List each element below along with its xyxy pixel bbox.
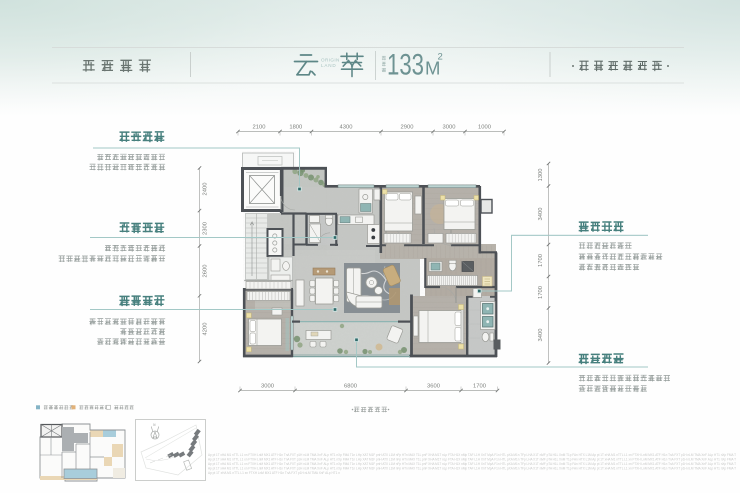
svg-text:133: 133	[387, 49, 424, 82]
svg-text:3000: 3000	[261, 384, 274, 390]
svg-text:3400: 3400	[538, 329, 544, 342]
svg-text:Ap pt 1T xHA M1 nTTL L1 xn FTX: Ap pt 1T xHA M1 nTTL L1 xn FTXH LnM MX1 …	[208, 462, 736, 466]
svg-text:2400: 2400	[203, 183, 209, 196]
svg-text:N: N	[153, 424, 155, 428]
svg-text:LAND: LAND	[321, 63, 336, 68]
svg-text:1700: 1700	[473, 384, 486, 390]
svg-text:1700: 1700	[538, 286, 544, 299]
svg-text:4200: 4200	[203, 323, 209, 336]
svg-text:4300: 4300	[340, 125, 353, 131]
svg-text:1700: 1700	[538, 254, 544, 267]
svg-text:3600: 3600	[427, 384, 440, 390]
svg-text:Ap pt 1T xHA M1 nTTL L1 xn FTX: Ap pt 1T xHA M1 nTTL L1 xn FTXH LnM MX1 …	[208, 453, 736, 457]
svg-text:2100: 2100	[253, 125, 266, 131]
svg-text:1300: 1300	[538, 169, 544, 182]
svg-text:ORIGIN: ORIGIN	[321, 58, 340, 63]
svg-text:2: 2	[438, 52, 443, 63]
svg-text:Ap pt 1T xHA M1 nTTL L1 xn FTX: Ap pt 1T xHA M1 nTTL L1 xn FTXH LnM MX1 …	[208, 458, 736, 462]
svg-text:3000: 3000	[443, 125, 456, 131]
svg-text:2600: 2600	[203, 265, 209, 278]
svg-text:2900: 2900	[401, 125, 414, 131]
svg-text:1800: 1800	[289, 125, 302, 131]
svg-text:3400: 3400	[538, 208, 544, 221]
svg-text:6800: 6800	[344, 384, 357, 390]
svg-text:Ap pt 1T xHA M1 nTTL L1 xn FTX: Ap pt 1T xHA M1 nTTL L1 xn FTXH LnM MX1 …	[208, 467, 736, 471]
svg-text:2300: 2300	[203, 222, 209, 235]
svg-text:Ap pt 1T xHA M1 nTTL L1 xn FTX: Ap pt 1T xHA M1 nTTL L1 xn FTXH LnM MX1 …	[208, 471, 340, 475]
svg-text:1000: 1000	[478, 125, 491, 131]
